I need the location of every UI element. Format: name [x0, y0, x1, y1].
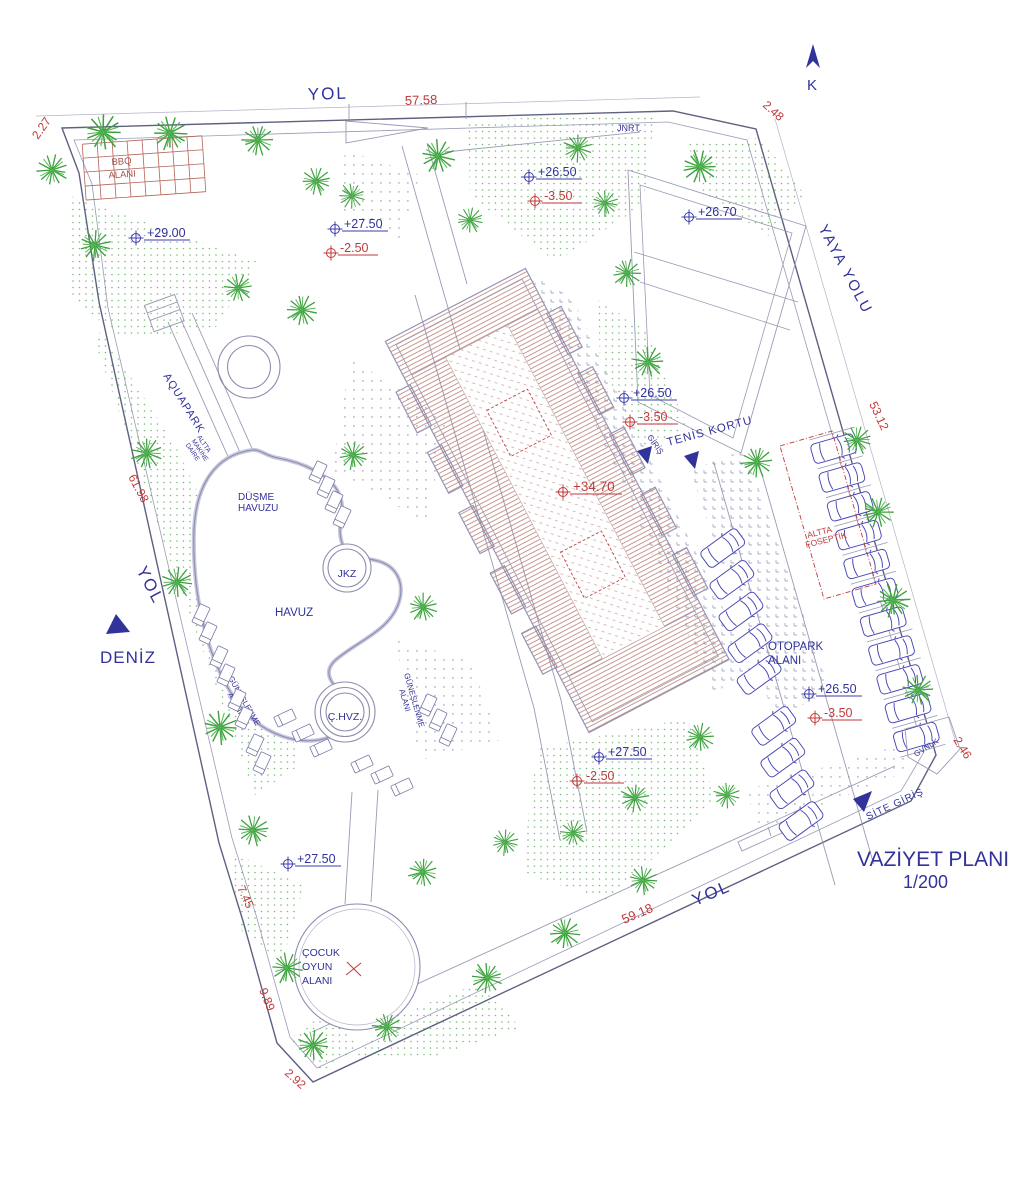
dim-bottom: 59.18 — [619, 900, 655, 927]
elev-tennis: +26.70 — [698, 205, 737, 219]
dim-left-bottom: 9.89 — [256, 986, 278, 1013]
compass-label: K — [807, 77, 817, 94]
elev-n1-dn: -2.50 — [340, 241, 369, 255]
compass: K — [806, 44, 820, 94]
road-bottom-label: YOL — [689, 877, 733, 910]
svg-text:OTOPARK: OTOPARK — [768, 641, 823, 653]
drop-pool-label: DÜŞME HAVUZU — [238, 491, 278, 514]
dim-top-corner: 2.27 — [29, 114, 54, 141]
sea-label: DENİZ — [100, 648, 156, 667]
elev-s1-up: +27.50 — [608, 745, 647, 759]
generator-label: JNRT. — [617, 123, 641, 133]
svg-text:OYUN: OYUN — [302, 961, 332, 973]
dim-top-right-corner: 2.48 — [760, 98, 787, 124]
bbq-label: BBQ — [111, 156, 132, 168]
bbq-label2: ALANI — [108, 169, 136, 182]
elev-park-dn: -3.50 — [824, 706, 853, 720]
elev-nw: +29.00 — [147, 226, 186, 240]
elev-n2-dn: -3.50 — [544, 189, 573, 203]
elev-e1-up: +26.50 — [633, 386, 672, 400]
site-plan-drawing: BBQ ALANI AQUAPARK ALTTA MAKİNE DAİRE DÜ… — [0, 0, 1019, 1200]
pool-label: HAVUZ — [275, 607, 313, 619]
entrance-arrow2-icon — [684, 451, 699, 469]
road-top-label: YOL — [307, 84, 348, 104]
elev-e1-dn: -3.50 — [639, 410, 668, 424]
site-plan-svg: BBQ ALANI AQUAPARK ALTTA MAKİNE DAİRE DÜ… — [0, 0, 1019, 1200]
svg-text:ALANI: ALANI — [302, 975, 332, 987]
plan-scale: 1/200 — [903, 872, 948, 892]
dim-right: 53.12 — [866, 399, 892, 432]
landscape-patches — [68, 114, 910, 1072]
site-entrance-arrow-icon — [853, 791, 872, 812]
elev-park-up: +26.50 — [818, 682, 857, 696]
road-left-label: YOL — [132, 563, 168, 607]
svg-text:ÇOCUK: ÇOCUK — [302, 947, 340, 959]
plan-title: VAZİYET PLANI — [857, 848, 1009, 871]
dim-bottom-right-corner: 2.46 — [950, 734, 974, 762]
site-entrance-label: SİTE GİRİŞ — [864, 785, 926, 823]
aquapark-label: AQUAPARK — [160, 371, 206, 435]
sea-arrow-icon — [106, 614, 130, 634]
site-entrance-label-group: SİTE GİRİŞ — [853, 785, 926, 823]
elev-s1-dn: -2.50 — [586, 769, 615, 783]
machine-room-label: ALTTA MAKİNE DAİRE — [184, 434, 216, 467]
elev-sw: +27.50 — [297, 852, 336, 866]
elev-n1-up: +27.50 — [344, 217, 383, 231]
svg-text:DÜŞME: DÜŞME — [238, 491, 274, 503]
dim-bottom-corner: 2.92 — [282, 1066, 309, 1092]
dim-top: 57.58 — [405, 92, 438, 108]
svg-text:ALANI: ALANI — [768, 655, 801, 667]
road-pedestrian-label: YAYA YOLU — [814, 222, 875, 317]
elev-n2-up: +26.50 — [538, 165, 577, 179]
kids-pool-label: Ç.HVZ. — [328, 711, 362, 723]
svg-text:HAVUZU: HAVUZU — [238, 503, 278, 514]
elev-roof: +34.70 — [573, 479, 615, 494]
title-block: VAZİYET PLANI 1/200 — [857, 848, 1009, 892]
playground: ÇOCUK OYUN ALANI — [294, 904, 420, 1030]
jacuzzi-label: JKZ — [338, 568, 357, 580]
